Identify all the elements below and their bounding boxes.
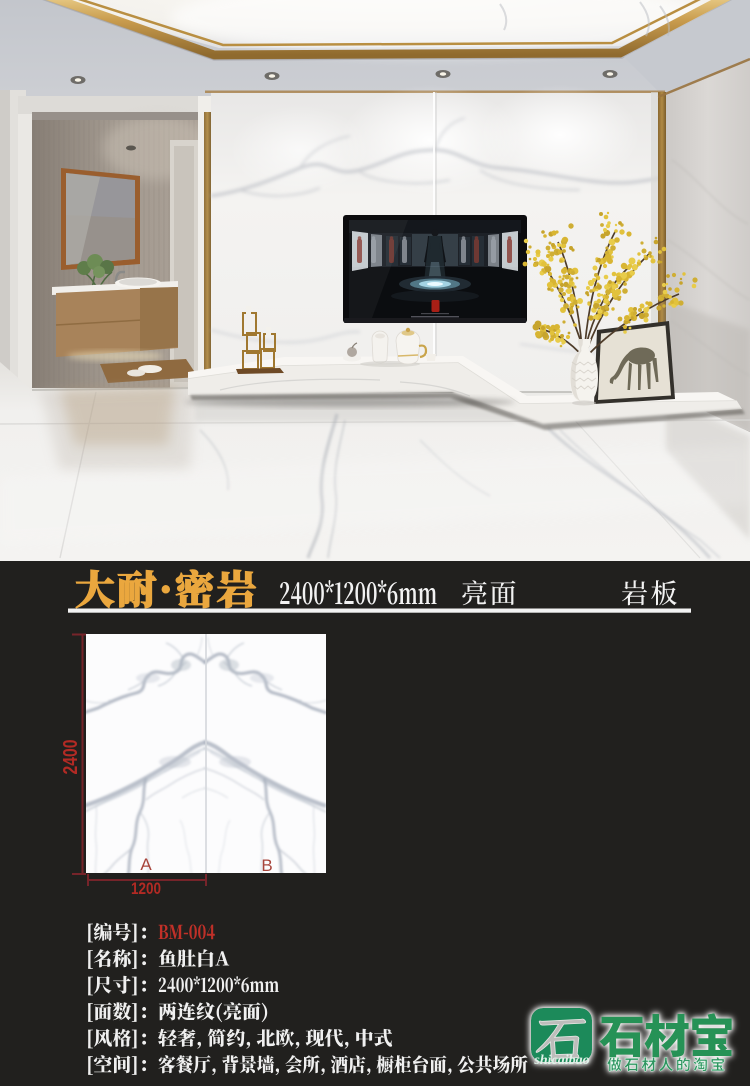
svg-text:2400: 2400 xyxy=(60,740,82,775)
svg-text:A: A xyxy=(140,855,152,874)
svg-text:B: B xyxy=(261,856,272,875)
svg-text:shicaibao: shicaibao xyxy=(533,1053,589,1068)
svg-text:1200: 1200 xyxy=(131,879,161,898)
